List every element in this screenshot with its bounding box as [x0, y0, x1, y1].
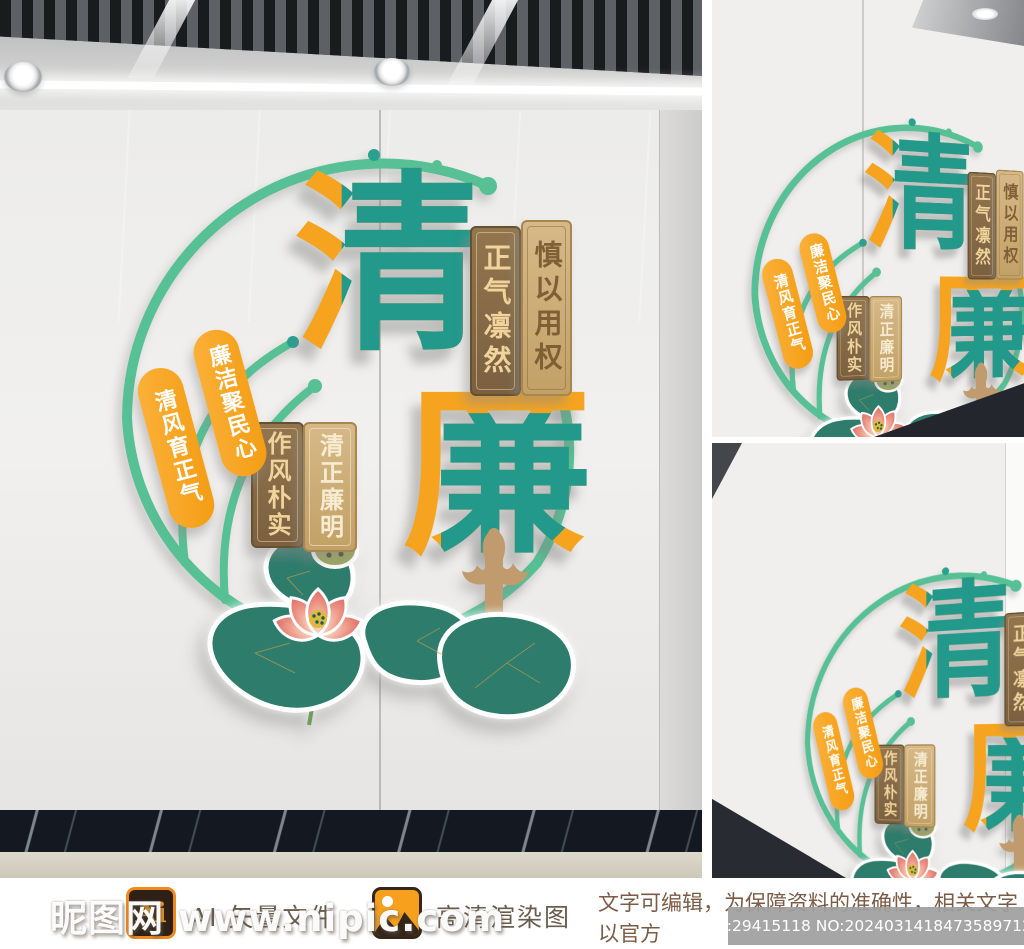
marble-baseboard [0, 810, 702, 852]
ceiling-downlight [374, 58, 410, 86]
plaque-qingzheng-lianming: 清正廉明 [303, 422, 357, 552]
angled-render-panel-bottom: 清 清 廉 廉 [712, 443, 1024, 878]
ceiling-downlight [972, 8, 998, 20]
culture-wall-artwork: 清 清 廉 廉 [753, 91, 1024, 437]
lotus-illustration [195, 523, 585, 748]
plaque-shen-yi-yong-quan: 慎以用权 [996, 170, 1024, 280]
side-wall [659, 82, 702, 812]
culture-wall-artwork: 清 清 廉 廉 [806, 540, 1024, 878]
artwork-slot-front: 清 清 廉 廉 [125, 128, 605, 768]
culture-wall-artwork: 清 清 廉 廉 [125, 128, 605, 768]
main-render-panel: 清 清 廉 廉 [0, 0, 702, 878]
plaque-zhengqi-linran: 正气凛然 [470, 226, 521, 396]
ceiling-corner [712, 443, 912, 535]
title-char-qing: 清 清 [894, 570, 1021, 710]
plaque-zhengqi-linran: 正气凛然 [968, 172, 996, 280]
site-watermark: 昵图网 www.nipic.com [50, 888, 505, 942]
angled-render-panel-top: 清 清 廉 廉 [712, 0, 1024, 437]
plaque-qingzheng-lianming: 清正廉明 [869, 296, 902, 382]
product-showcase-image: 清 清 廉 廉 [0, 0, 1024, 949]
ceiling-corner [912, 0, 1024, 46]
ceiling [0, 0, 702, 110]
ceiling-downlight [4, 62, 42, 92]
plaque-qingzheng-lianming: 清正廉明 [904, 744, 935, 828]
artwork-slot-angled: 清 清 廉 廉 [806, 540, 1024, 878]
plaque-zhengqi-linran: 正气凛然 [1004, 611, 1024, 726]
asset-id-badge: ID:29415118 NO:20240314184735897128 [728, 907, 1024, 945]
file-info-bar: Ai AI 矢量文件 高清渲染图 文字可编辑，为保障资料的准确性，相关文字以官方… [0, 878, 1024, 949]
artwork-slot-angled: 清 清 廉 廉 [753, 91, 1024, 437]
title-char-qing: 清 清 [858, 123, 982, 262]
title-char-qing: 清 清 [285, 163, 495, 368]
marble-floor [0, 852, 702, 878]
plaque-shen-yi-yong-quan: 慎以用权 [521, 220, 572, 396]
